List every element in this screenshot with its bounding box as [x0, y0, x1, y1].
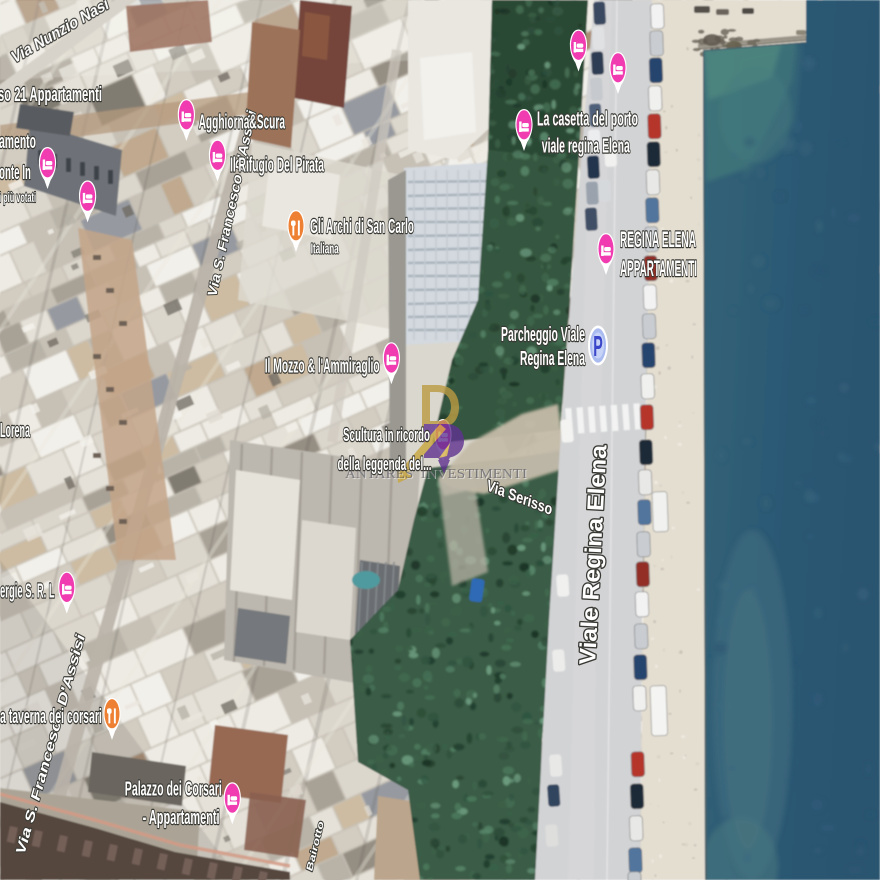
- svg-text:amento: amento: [0, 131, 36, 153]
- svg-text:Italiana: Italiana: [311, 240, 339, 257]
- svg-text:della leggenda del...: della leggenda del...: [338, 454, 432, 474]
- svg-text:- Appartamenti: - Appartamenti: [143, 807, 220, 829]
- svg-text:i più votati: i più votati: [0, 189, 36, 205]
- svg-text:a taverna dei corsari: a taverna dei corsari: [0, 706, 102, 728]
- svg-text:viale regina Elena: viale regina Elena: [542, 136, 630, 158]
- svg-text:P: P: [593, 331, 603, 363]
- svg-text:Palazzo dei Corsari: Palazzo dei Corsari: [125, 779, 222, 801]
- svg-text:La casetta del porto: La casetta del porto: [537, 108, 638, 130]
- svg-text:Il Rifugio Del Pirata: Il Rifugio Del Pirata: [230, 155, 324, 177]
- svg-text:ergie S. R. L: ergie S. R. L: [0, 581, 55, 603]
- svg-text:Lorena: Lorena: [0, 420, 30, 442]
- svg-text:so 21 Appartamenti: so 21 Appartamenti: [0, 84, 102, 106]
- svg-text:Agghiorna&Scura: Agghiorna&Scura: [199, 112, 286, 134]
- svg-text:onte In: onte In: [0, 162, 31, 184]
- svg-text:Il Mozzo & l'Ammiraglio: Il Mozzo & l'Ammiraglio: [265, 356, 380, 378]
- svg-text:Parcheggio Viale: Parcheggio Viale: [501, 324, 585, 346]
- svg-text:Scultura in ricordo: Scultura in ricordo: [343, 425, 430, 445]
- svg-text:APPARTAMENTI: APPARTAMENTI: [620, 256, 697, 281]
- svg-text:Gli Archi di San Carlo: Gli Archi di San Carlo: [310, 216, 414, 238]
- svg-text:REGINA ELENA: REGINA ELENA: [620, 227, 696, 252]
- svg-text:Regina Elena: Regina Elena: [520, 348, 585, 370]
